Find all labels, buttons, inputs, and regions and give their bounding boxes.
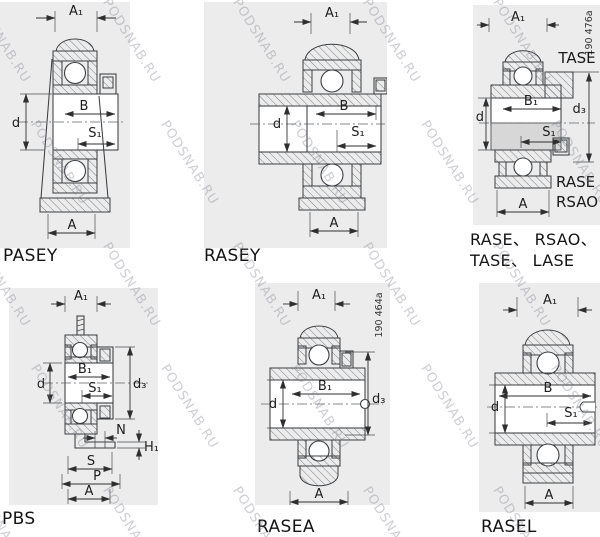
pasey-housing-cap <box>56 39 94 51</box>
rase-ball-bottom <box>514 158 532 176</box>
caption-rase-group: RASE、 RSAO、 TASE、 LASE <box>470 229 597 271</box>
caption-rase-line1: RASE、 RSAO、 <box>470 229 597 250</box>
rasel-dim-a1: A₁ <box>543 293 557 308</box>
rasea-dim-a1: A₁ <box>312 288 326 303</box>
drawing-pasey: A₁ B S₁ <box>0 2 130 248</box>
pasey-ball-bottom <box>65 161 86 182</box>
pasey-dim-s1: S₁ <box>88 126 101 141</box>
pbs-dim-s: S <box>87 454 95 469</box>
drawing-rase: 190 476a A₁ TASE B₁ <box>473 5 600 225</box>
rasey-ball-top <box>321 70 343 92</box>
pasey-dim-d: d <box>12 116 20 131</box>
rasel-slot <box>580 402 595 412</box>
pasey-base <box>40 198 110 212</box>
rase-dim-a1: A₁ <box>511 10 525 25</box>
panel-pasey: A₁ B S₁ <box>0 2 130 248</box>
rasel-dim-a: A <box>545 488 554 503</box>
rase-dim-d3: d₃ <box>573 102 586 117</box>
caption-pasey: PASEY <box>3 246 58 266</box>
rasel-base <box>523 473 573 483</box>
rasea-dim-d: d <box>269 397 277 412</box>
caption-rasey: RASEY <box>204 246 261 266</box>
pbs-dim-d3: d₃ <box>133 377 146 392</box>
watermark-text: PODSNAB.RU <box>417 362 481 452</box>
rase-base <box>495 176 551 188</box>
rasey-base <box>299 198 365 210</box>
rase-dim-a: A <box>519 197 528 212</box>
rasey-dim-a1: A₁ <box>325 6 339 21</box>
panel-rasey: A₁ B d S₁ <box>204 2 387 248</box>
rasea-dim-b1: B₁ <box>318 379 332 394</box>
pbs-ball-top <box>73 343 88 358</box>
rasey-dim-s1: S₁ <box>351 125 364 140</box>
rase-callout-rsao: RSAO <box>556 193 598 211</box>
rase-dim-b1: B₁ <box>524 94 538 109</box>
pasey-ball-top <box>65 63 86 84</box>
rasey-dim-b: B <box>340 99 349 114</box>
caption-pbs: PBS <box>2 509 36 529</box>
drawing-rasea: 190 464a A₁ B₁ <box>255 283 390 505</box>
pbs-dim-h1: H₁ <box>144 440 158 455</box>
pasey-dim-a: A <box>68 218 77 233</box>
rase-callout-rase: RASE <box>556 173 595 191</box>
panel-rasea: 190 464a A₁ B₁ <box>255 283 390 505</box>
caption-rase-line2: TASE、 LASE <box>470 250 597 271</box>
rasea-dim-d3: d₃ <box>372 392 385 407</box>
panel-rasel: A₁ B d S₁ <box>479 283 600 512</box>
pbs-ball-bottom <box>73 409 88 424</box>
rasea-ball-top <box>309 345 329 365</box>
rasey-ball-bottom <box>321 164 343 186</box>
rasea-dim-a: A <box>315 487 324 502</box>
caption-rasel: RASEL <box>481 517 537 537</box>
rase-dim-d: d <box>476 110 484 125</box>
rasea-housing-cap <box>300 326 338 338</box>
rasey-housing-cap <box>305 44 359 60</box>
rasel-housing-cap <box>525 330 570 345</box>
rasea-base <box>300 466 338 486</box>
pbs-dim-a: A <box>85 484 94 499</box>
pasey-dim-a1: A₁ <box>69 4 83 19</box>
pasey-dim-b: B <box>80 99 89 114</box>
rasel-dim-b: B <box>544 381 553 396</box>
pbs-dim-s1: S₁ <box>88 381 101 396</box>
rasey-dim-d: d <box>273 117 281 132</box>
pbs-dim-b1: B₁ <box>78 362 92 377</box>
drawing-rasel: A₁ B d S₁ <box>479 283 600 512</box>
rasea-part-number: 190 464a <box>374 292 385 337</box>
rasel-dim-s1: S₁ <box>564 406 577 421</box>
panel-rase: 190 476a A₁ TASE B₁ <box>473 5 600 225</box>
pbs-dim-a1: A₁ <box>74 289 88 304</box>
watermark-text: PODSNAB.RU <box>417 118 481 208</box>
rasel-ball-top <box>537 352 559 374</box>
pbs-dim-d: d <box>37 377 45 392</box>
rase-housing-cap <box>505 51 541 62</box>
rasey-dim-a: A <box>330 216 339 231</box>
watermark-text: PODSNAB.RU <box>157 362 221 452</box>
pbs-dim-n: N <box>116 423 126 438</box>
rase-dim-s1: S₁ <box>542 125 555 140</box>
rasel-dim-d: d <box>491 400 499 415</box>
drawing-rasey: A₁ B d S₁ <box>204 2 387 248</box>
panel-pbs: A₁ B₁ d <box>9 288 158 505</box>
caption-rasea: RASEA <box>257 517 315 537</box>
rase-ball-top <box>514 67 532 85</box>
drawing-pbs: A₁ B₁ d <box>9 288 158 505</box>
page: A₁ B S₁ <box>0 0 600 537</box>
pbs-dim-p: P <box>93 469 101 484</box>
rase-callout-tase: TASE <box>557 49 595 67</box>
